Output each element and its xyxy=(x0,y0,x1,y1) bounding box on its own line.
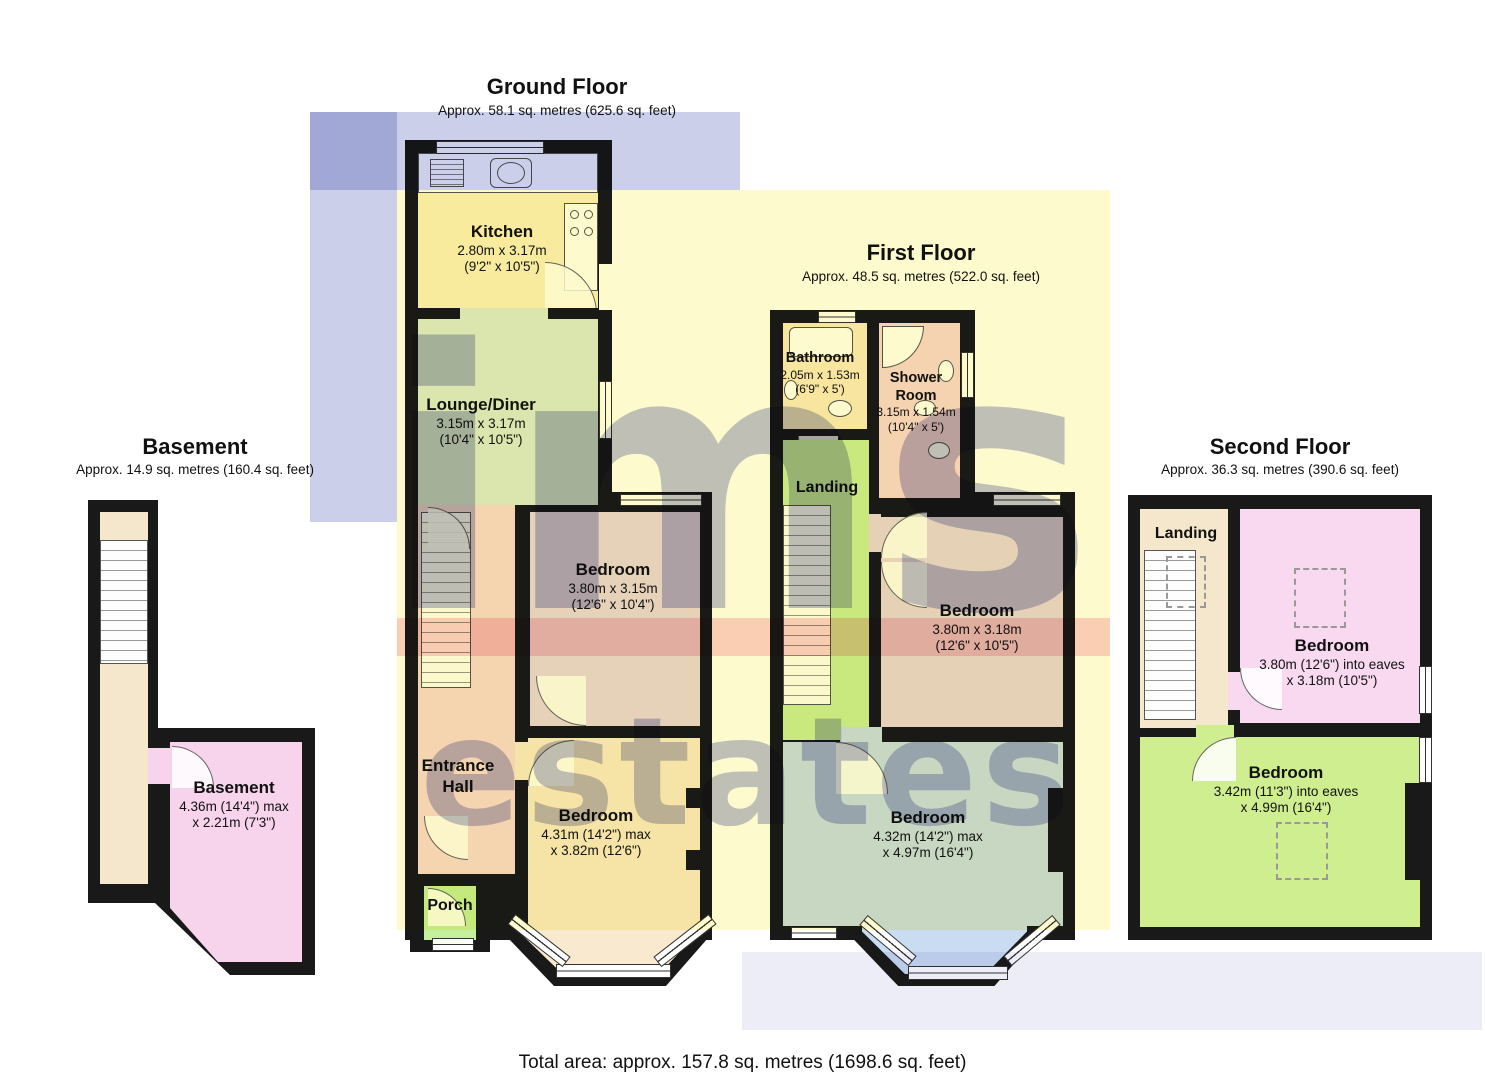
watermark-lavender-strip xyxy=(310,112,397,522)
watermark-lavender-bottom-band xyxy=(742,952,1482,1030)
lounge-window xyxy=(599,381,612,439)
hob-ring-icon xyxy=(584,210,593,219)
kitchen-window xyxy=(436,141,544,154)
hob-ring-icon xyxy=(584,227,593,236)
room-label-bathroom: Bathroom 2.05m x 1.53m (6'9" x 5') xyxy=(780,350,859,397)
room-label-lounge-diner: Lounge/Diner 3.15m x 3.17m (10'4" x 10'5… xyxy=(426,395,536,449)
porch-door-window xyxy=(432,938,474,951)
bedroom-green-door-gap xyxy=(1196,725,1234,737)
bedroom-front-door-gap xyxy=(515,742,528,780)
first-floor-title: First Floor xyxy=(746,240,1096,266)
room-label-kitchen: Kitchen 2.80m x 3.17m (9'2" x 10'5") xyxy=(457,222,546,276)
bedroom-pink-window xyxy=(1419,666,1432,714)
kitchen-door-gap xyxy=(599,264,612,310)
basement-stairs xyxy=(100,540,148,664)
room-label-bedroom-mid-ground: Bedroom 3.80m x 3.15m (12'6" x 10'4") xyxy=(568,560,657,614)
sink-basin-icon xyxy=(497,162,525,184)
bedroom-front-first-window xyxy=(791,927,837,939)
room-label-bedroom-front-first: Bedroom 4.32m (14'2") max x 4.97m (16'4"… xyxy=(873,808,982,862)
room-label-landing-second: Landing xyxy=(1155,524,1217,544)
toilet-icon xyxy=(828,400,852,417)
room-label-porch: Porch xyxy=(427,896,472,916)
shower-window xyxy=(961,352,974,398)
hob-ring-icon xyxy=(570,210,579,219)
bedroom-mid-first-door-gap xyxy=(869,514,881,552)
total-area-text: Total area: approx. 157.8 sq. metres (16… xyxy=(0,1052,1485,1074)
chimney-breast xyxy=(1048,788,1075,872)
ground-floor-subtitle: Approx. 58.1 sq. metres (625.6 sq. feet) xyxy=(382,103,732,118)
first-floor-subtitle: Approx. 48.5 sq. metres (522.0 sq. feet) xyxy=(746,269,1096,284)
room-label-basement: Basement 4.36m (14'4") max x 2.21m (7'3"… xyxy=(179,778,288,832)
second-floor-subtitle: Approx. 36.3 sq. metres (390.6 sq. feet) xyxy=(1105,462,1455,477)
room-name: Basement xyxy=(179,778,288,799)
chimney-breast xyxy=(686,788,712,808)
drainer-icon xyxy=(430,159,464,187)
ground-floor-title: Ground Floor xyxy=(382,74,732,100)
chimney-breast xyxy=(686,850,712,870)
bedroom-mid-window xyxy=(620,494,702,506)
bay-window-center xyxy=(908,966,1008,980)
bedroom-green-dashed-outline xyxy=(1276,822,1328,880)
bedroom-pink-dashed-outline xyxy=(1294,568,1346,628)
chimney-breast xyxy=(1405,783,1432,880)
bedroom-front-first-door-gap xyxy=(840,727,882,742)
basement-door-gap xyxy=(148,748,170,784)
room-label-bedroom-pink: Bedroom 3.80m (12'6") into eaves x 3.18m… xyxy=(1259,636,1404,690)
bathroom-window xyxy=(818,311,856,323)
bay-window-center xyxy=(556,964,671,978)
basement-title: Basement xyxy=(20,434,370,460)
room-label-landing-first: Landing xyxy=(796,478,858,498)
room-label-bedroom-green: Bedroom 3.42m (11'3") into eaves x 4.99m… xyxy=(1214,763,1358,817)
room-label-shower: Shower Room 3.15m x 1.54m (10'4" x 5') xyxy=(870,370,962,435)
room-label-bedroom-mid-first: Bedroom 3.80m x 3.18m (12'6" x 10'5") xyxy=(932,601,1021,655)
hob-ring-icon xyxy=(570,227,579,236)
landing-dashed-outline xyxy=(1166,556,1206,608)
floorplan-page: Ground Floor Approx. 58.1 sq. metres (62… xyxy=(0,0,1485,1080)
toilet-icon xyxy=(928,442,950,459)
second-floor-title: Second Floor xyxy=(1105,434,1455,460)
lounge-opening xyxy=(460,308,548,319)
room-label-bedroom-front-ground: Bedroom 4.31m (14'2") max x 3.82m (12'6"… xyxy=(541,806,650,860)
bedroom-green-window xyxy=(1419,737,1432,783)
first-stairs xyxy=(783,505,831,705)
bedroom-pink-door-gap xyxy=(1228,672,1240,710)
basement-subtitle: Approx. 14.9 sq. metres (160.4 sq. feet) xyxy=(20,462,370,477)
bedroom-mid-first-window xyxy=(993,494,1061,506)
room-label-entrance-hall: Entrance Hall xyxy=(408,756,508,797)
